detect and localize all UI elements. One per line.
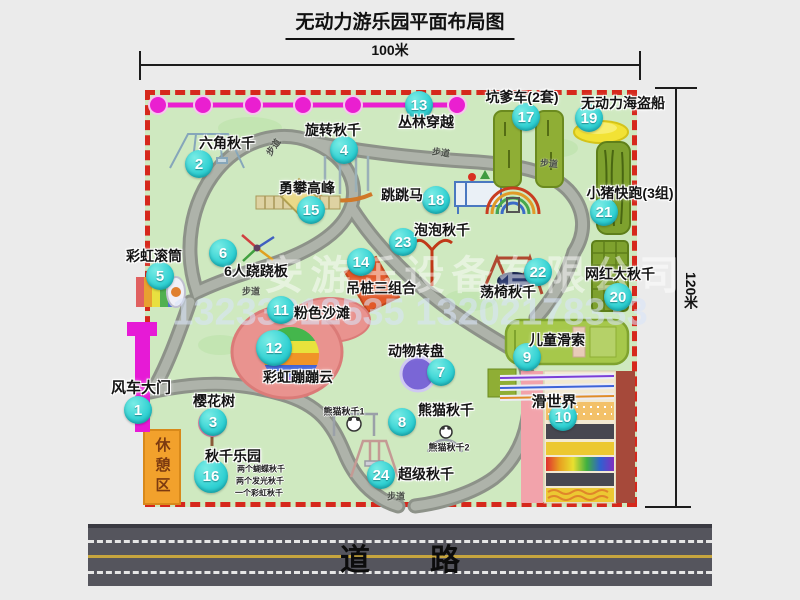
location-label-2: 六角秋千 bbox=[199, 133, 255, 153]
park-layout-figure: 无动力游乐园平面布局图 100米 120米 休憩区 bbox=[0, 0, 800, 600]
location-label-9: 儿童滑索 bbox=[529, 330, 585, 350]
map-labels-layer: 1风车大门2六角秋千3樱花树4旋转秋千5彩虹滚筒66人跷跷板7动物转盘8熊猫秋千… bbox=[0, 0, 800, 600]
location-badge-7: 7 bbox=[427, 358, 455, 386]
sub-label: 一个彩虹秋千 bbox=[235, 488, 283, 499]
location-label-10: 滑世界 bbox=[531, 391, 576, 412]
location-badge-15: 15 bbox=[297, 196, 325, 224]
location-label-5: 彩虹滚筒 bbox=[126, 246, 182, 266]
width-dimension-label: 100米 bbox=[140, 40, 640, 60]
location-label-8: 熊猫秋千 bbox=[418, 400, 474, 420]
location-badge-2: 2 bbox=[185, 150, 213, 178]
location-label-17: 坑爹车(2套) bbox=[485, 87, 558, 107]
location-label-24: 超级秋千 bbox=[398, 464, 454, 484]
walkway-label: 步道 bbox=[263, 136, 284, 158]
walkway-label: 步道 bbox=[431, 144, 451, 159]
location-label-11: 粉色沙滩 bbox=[294, 303, 350, 323]
location-label-19: 无动力海盗船 bbox=[581, 93, 665, 113]
page-title: 无动力游乐园平面布局图 bbox=[285, 7, 514, 40]
location-badge-12: 12 bbox=[256, 330, 292, 366]
location-label-14: 吊桩三组合 bbox=[346, 278, 416, 298]
location-badge-8: 8 bbox=[388, 408, 416, 436]
location-badge-23: 23 bbox=[389, 228, 417, 256]
location-label-22: 荡椅秋千 bbox=[480, 282, 536, 302]
location-badge-3: 3 bbox=[199, 408, 227, 436]
location-label-20: 网红大秋千 bbox=[585, 264, 655, 284]
location-label-4: 旋转秋千 bbox=[305, 120, 361, 140]
location-label-3: 樱花树 bbox=[193, 391, 235, 411]
location-badge-5: 5 bbox=[146, 262, 174, 290]
location-label-6: 6人跷跷板 bbox=[224, 261, 288, 281]
walkway-label: 步道 bbox=[242, 285, 260, 298]
location-badge-20: 20 bbox=[604, 283, 632, 311]
location-label-23: 泡泡秋千 bbox=[414, 220, 470, 240]
location-label-1: 风车大门 bbox=[111, 377, 171, 398]
location-label-15: 勇攀高峰 bbox=[279, 178, 335, 198]
location-badge-24: 24 bbox=[367, 461, 395, 489]
height-dimension-label: 120米 bbox=[681, 272, 701, 309]
sub-label: 两个发光秋千 bbox=[236, 476, 284, 487]
location-badge-11: 11 bbox=[267, 296, 295, 324]
location-label-13: 丛林穿越 bbox=[398, 112, 454, 132]
walkway-label: 步道 bbox=[387, 490, 405, 503]
location-badge-14: 14 bbox=[347, 248, 375, 276]
location-badge-1: 1 bbox=[124, 396, 152, 424]
sub-label: 熊猫秋千1 bbox=[323, 405, 364, 418]
location-label-7: 动物转盘 bbox=[388, 341, 444, 361]
location-label-21: 小猪快跑(3组) bbox=[586, 183, 673, 203]
location-label-12: 彩虹蹦蹦云 bbox=[263, 367, 333, 387]
walkway-label: 步道 bbox=[539, 156, 558, 171]
location-badge-18: 18 bbox=[422, 186, 450, 214]
location-badge-17: 17 bbox=[512, 103, 540, 131]
location-badge-4: 4 bbox=[330, 136, 358, 164]
sub-label: 熊猫秋千2 bbox=[428, 441, 469, 454]
sub-label: 两个蝴蝶秋千 bbox=[237, 464, 285, 475]
location-label-18: 跳跳马 bbox=[381, 185, 423, 205]
